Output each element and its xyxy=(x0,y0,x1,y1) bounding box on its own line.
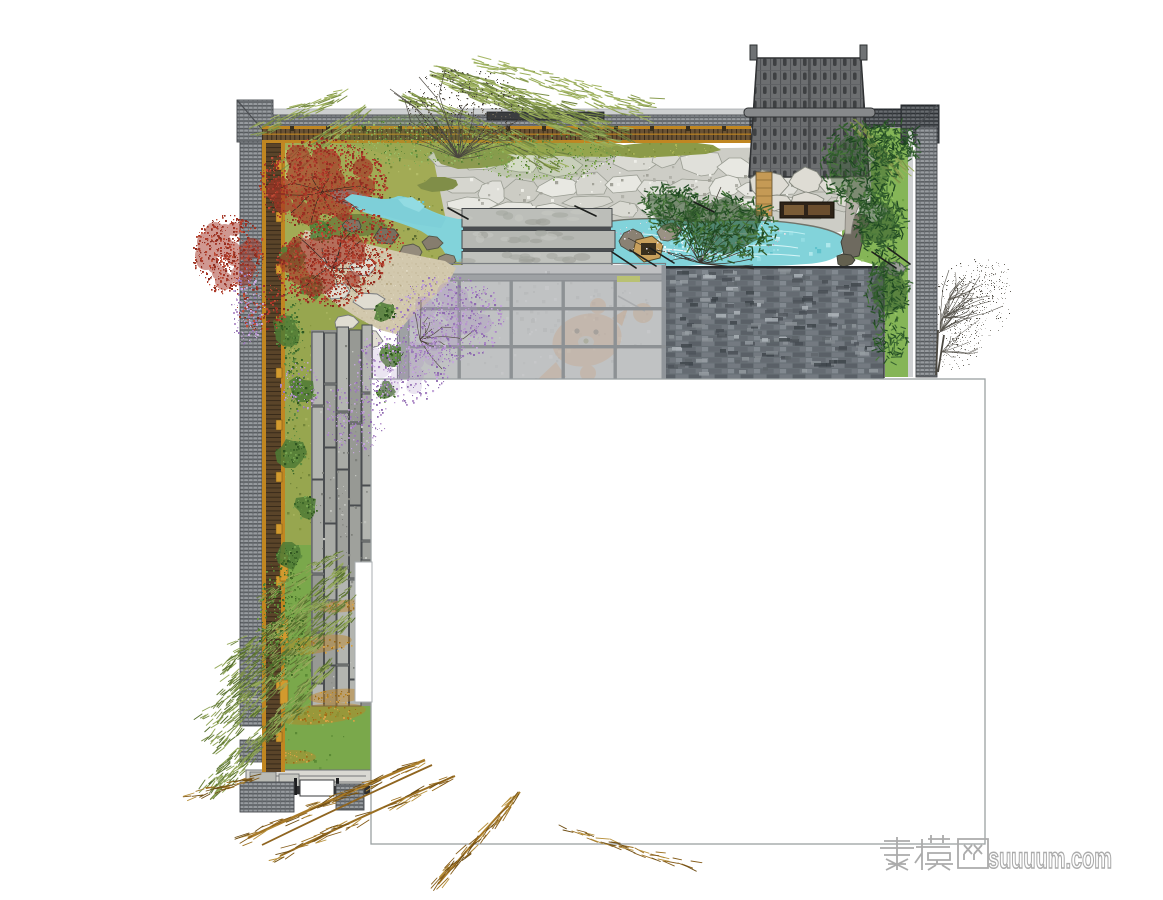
svg-text:suuuum.com: suuuum.com xyxy=(988,842,1112,875)
